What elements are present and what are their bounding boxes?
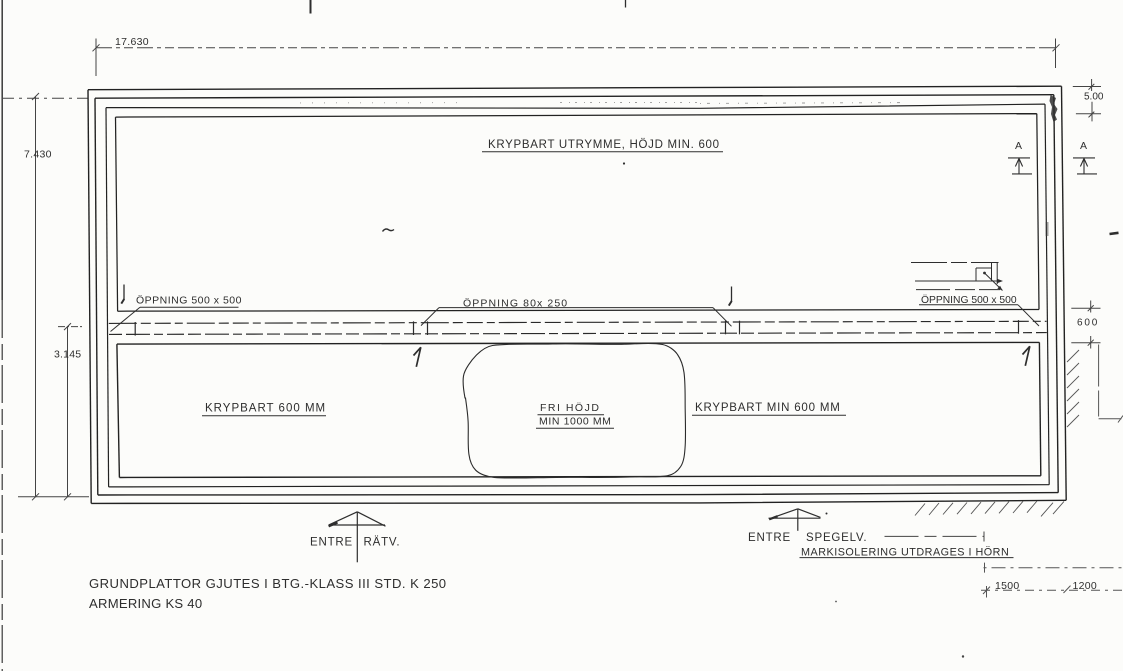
svg-text:A: A (1080, 140, 1087, 152)
svg-text:ÖPPNING 500 x 500: ÖPPNING 500 x 500 (136, 295, 242, 307)
svg-text:5.00: 5.00 (1084, 92, 1104, 103)
svg-text:1500: 1500 (995, 580, 1020, 592)
svg-text:MARKISOLERING UTDRAGES I HÖ: MARKISOLERING UTDRAGES I HÖRN (801, 546, 1009, 558)
svg-text:ENTRE: ENTRE (310, 537, 353, 549)
svg-text:FRI HÖJD: FRI HÖJD (540, 402, 600, 414)
svg-text:RÄTV.: RÄTV. (364, 537, 401, 549)
svg-text:SPEGELV.: SPEGELV. (806, 532, 867, 544)
svg-text:1200: 1200 (1073, 580, 1098, 592)
svg-text:KRYPBART 600 MM: KRYPBART 600 MM (205, 403, 326, 415)
svg-text:17.630: 17.630 (115, 36, 149, 48)
svg-text:ENTRE: ENTRE (748, 532, 791, 544)
svg-text:ARMERING KS 40: ARMERING KS 40 (89, 596, 202, 611)
svg-text:MIN 1000 MM: MIN 1000 MM (539, 415, 612, 427)
svg-text:ÖPPNING 500 x 500: ÖPPNING 500 x 500 (921, 294, 1017, 306)
svg-text:KRYPBART MIN 600 MM: KRYPBART MIN 600 MM (695, 402, 841, 414)
svg-text:GRUNDPLATTOR GJUTES I BTG.-: GRUNDPLATTOR GJUTES I BTG.-KLASS III STD… (89, 576, 447, 591)
svg-text:KRYPBART UTRYMME, HÖJD MIN.: KRYPBART UTRYMME, HÖJD MIN. 600 (488, 139, 720, 151)
svg-text:3.145: 3.145 (54, 349, 81, 361)
svg-text:600: 600 (1077, 318, 1099, 329)
svg-text:A: A (1015, 140, 1022, 152)
svg-text:7.430: 7.430 (24, 149, 52, 161)
